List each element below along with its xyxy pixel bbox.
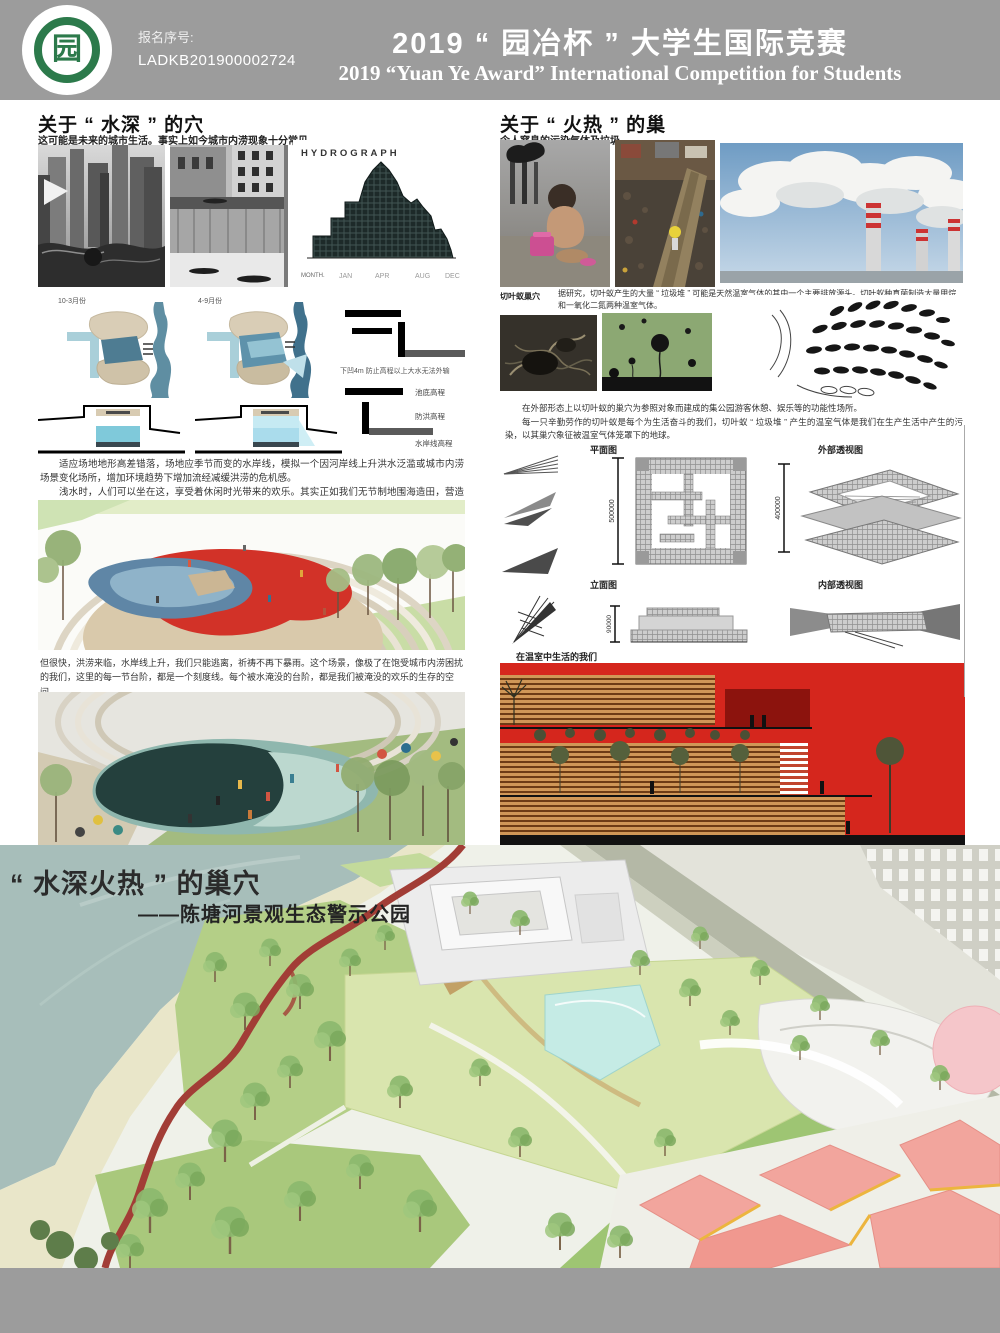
flood-section-a: [38, 398, 185, 456]
column-divider: [964, 425, 965, 697]
award-logo: 园: [22, 5, 112, 95]
legend-flood-bar: [362, 402, 369, 434]
legend-note: 下凹4m 防止高程以上大水无法外输: [340, 366, 466, 376]
venice-collage-photo: [170, 145, 288, 287]
plan-drawing: 500000: [608, 452, 768, 572]
garbage-alley-photo: [615, 140, 715, 287]
flood-section-b: [195, 398, 342, 456]
hydrograph-tick-apr: APR: [375, 273, 389, 280]
header: 园 报名序号: LADKB201900002724 2019 “ 园冶杯 ” 大…: [0, 0, 1000, 100]
concept-shape-stack: [500, 452, 562, 652]
exterior-dimension: 400000: [775, 496, 782, 519]
interior-drawing-label: 内部透视图: [818, 578, 863, 591]
legend-pool-label: 池底高程: [415, 387, 445, 398]
entry-number-label: 报名序号:: [138, 27, 194, 46]
interior-perspective-drawing: [785, 592, 965, 654]
award-logo-ring: 园: [34, 17, 100, 83]
greenhouse-planting-overlay: [500, 663, 965, 845]
amphitheater-dry-rendering: [38, 500, 465, 650]
award-logo-glyph: 园: [52, 35, 82, 65]
legend-bar-top: [345, 310, 401, 317]
legend-bar-vertical: [398, 322, 405, 357]
exterior-perspective-drawing: 400000: [770, 452, 965, 582]
greenhouse-section-drawing: [500, 663, 965, 845]
hydrograph-x-label: MONTH.: [301, 273, 325, 279]
elevation-drawing: 90000: [605, 592, 755, 652]
flooded-city-photo: [38, 145, 165, 287]
footer-band: [0, 1268, 1000, 1333]
seasonal-plan-a: [55, 302, 185, 398]
ant-nest-photo-1: [500, 315, 597, 391]
masterplan-subtitle: ——陈塘河景观生态警示公园: [138, 898, 411, 927]
greenhouse-caption: 在温室中生活的我们: [516, 650, 597, 663]
legend-pool-bar: [345, 388, 403, 395]
masterplan-title: “ 水深火热 ” 的巢穴: [10, 862, 261, 901]
elevation-drawing-label: 立面图: [590, 578, 617, 591]
competition-title-en: 2019 “Yuan Ye Award” International Compe…: [260, 61, 980, 86]
amphitheater-flooded-rendering: [38, 692, 465, 845]
elevation-dimension: 90000: [606, 615, 613, 633]
competition-poster: 园 报名序号: LADKB201900002724 2019 “ 园冶杯 ” 大…: [0, 0, 1000, 1333]
legend-flood-label: 防洪高程: [415, 411, 445, 422]
ant-nest-photo-2: [602, 313, 712, 391]
child-pollution-photo: [500, 140, 610, 287]
competition-title-cn: 2019 “ 园冶杯 ” 大学生国际竞赛: [260, 20, 980, 62]
water-paragraph-1: 适应场地地形高差错落，场地应季节而变的水岸线，模拟一个因河岸线上升洪水泛滥或城市…: [40, 458, 464, 487]
fire-paragraph-2: 每一只辛勤劳作的切叶蚁是每个为生活奋斗的我们，切叶蚁 “ 垃圾堆 ” 产生的温室…: [505, 416, 963, 442]
legend-bar-gray: [405, 350, 465, 357]
legend-shore-label: 水岸线高程: [415, 438, 453, 449]
ant-nest-sketch: [742, 295, 964, 399]
hydrograph-tick-aug: AUG: [415, 273, 430, 280]
hydrograph-tick-jan: JAN: [339, 273, 352, 280]
legend-bar-mid: [352, 328, 392, 334]
power-plant-photo: [720, 143, 963, 283]
hydrograph-panel: HYDROGRAPH MONTH. JAN APR AUG DEC: [293, 140, 465, 288]
seasonal-plan-b: [195, 302, 325, 398]
legend-shore-bar: [369, 428, 433, 435]
plan-dimension: 500000: [609, 499, 616, 522]
ant-nest-label: 切叶蚁巢穴: [500, 291, 540, 302]
hydrograph-tick-dec: DEC: [445, 273, 460, 280]
fire-paragraph-1: 在外部形态上以切叶蚁的巢穴为参照对象而建成的集公园游客休憩、娱乐等的功能性场所。: [505, 402, 960, 415]
